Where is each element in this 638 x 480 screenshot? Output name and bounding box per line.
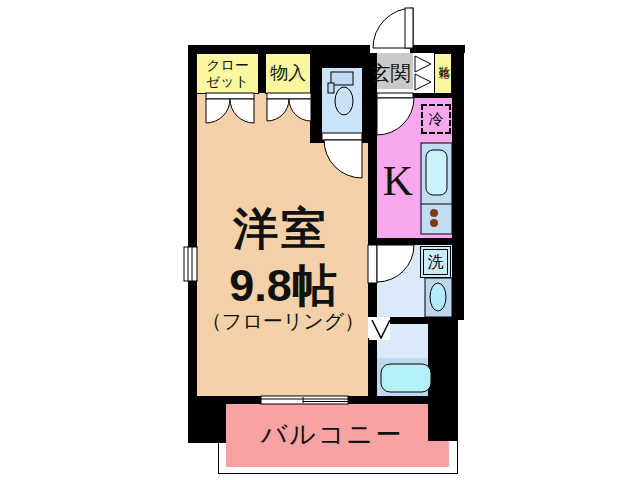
- toilet-fixture-icon: [328, 72, 353, 115]
- refrigerator-box: 冷: [421, 104, 451, 134]
- closet-label-line1: クロー: [196, 57, 259, 73]
- washer-box-inner: 洗: [423, 249, 448, 275]
- toilet-door-symbol: [322, 133, 362, 178]
- shoebox-door-symbol: [415, 56, 431, 90]
- closet-label-line2: ゼット: [196, 73, 259, 89]
- vanity-basin-icon: [425, 278, 452, 317]
- washer-box: 洗: [420, 246, 451, 278]
- closet-label: クロー ゼット: [196, 57, 259, 89]
- closet-door-symbol: [206, 93, 254, 123]
- shoebox-label: 靴箱: [437, 57, 450, 61]
- kitchen-label: K: [377, 157, 419, 205]
- storage-door-symbol: [267, 93, 311, 121]
- entrance-label: 玄関: [368, 62, 413, 85]
- main-room-name: 洋室: [190, 203, 372, 255]
- washer-label: 洗: [428, 252, 444, 273]
- kitchen-door-symbol: [377, 93, 414, 135]
- main-room-floor-note: （フローリング）: [190, 310, 376, 333]
- floor-plan: 冷 洗 クロー ゼット 物入 玄関 靴箱 K 洋室 9.8帖 （フローリング） …: [0, 0, 638, 480]
- balcony-sliding-window: [261, 396, 348, 404]
- refrigerator-label: 冷: [429, 110, 444, 129]
- entrance-door-symbol: [373, 8, 413, 48]
- kitchen-counter-icon: [421, 143, 452, 234]
- main-room-size: 9.8帖: [190, 260, 376, 312]
- balcony-label: バルコニー: [232, 420, 432, 450]
- bathtub-icon: [381, 364, 431, 392]
- storage-label: 物入: [265, 63, 311, 84]
